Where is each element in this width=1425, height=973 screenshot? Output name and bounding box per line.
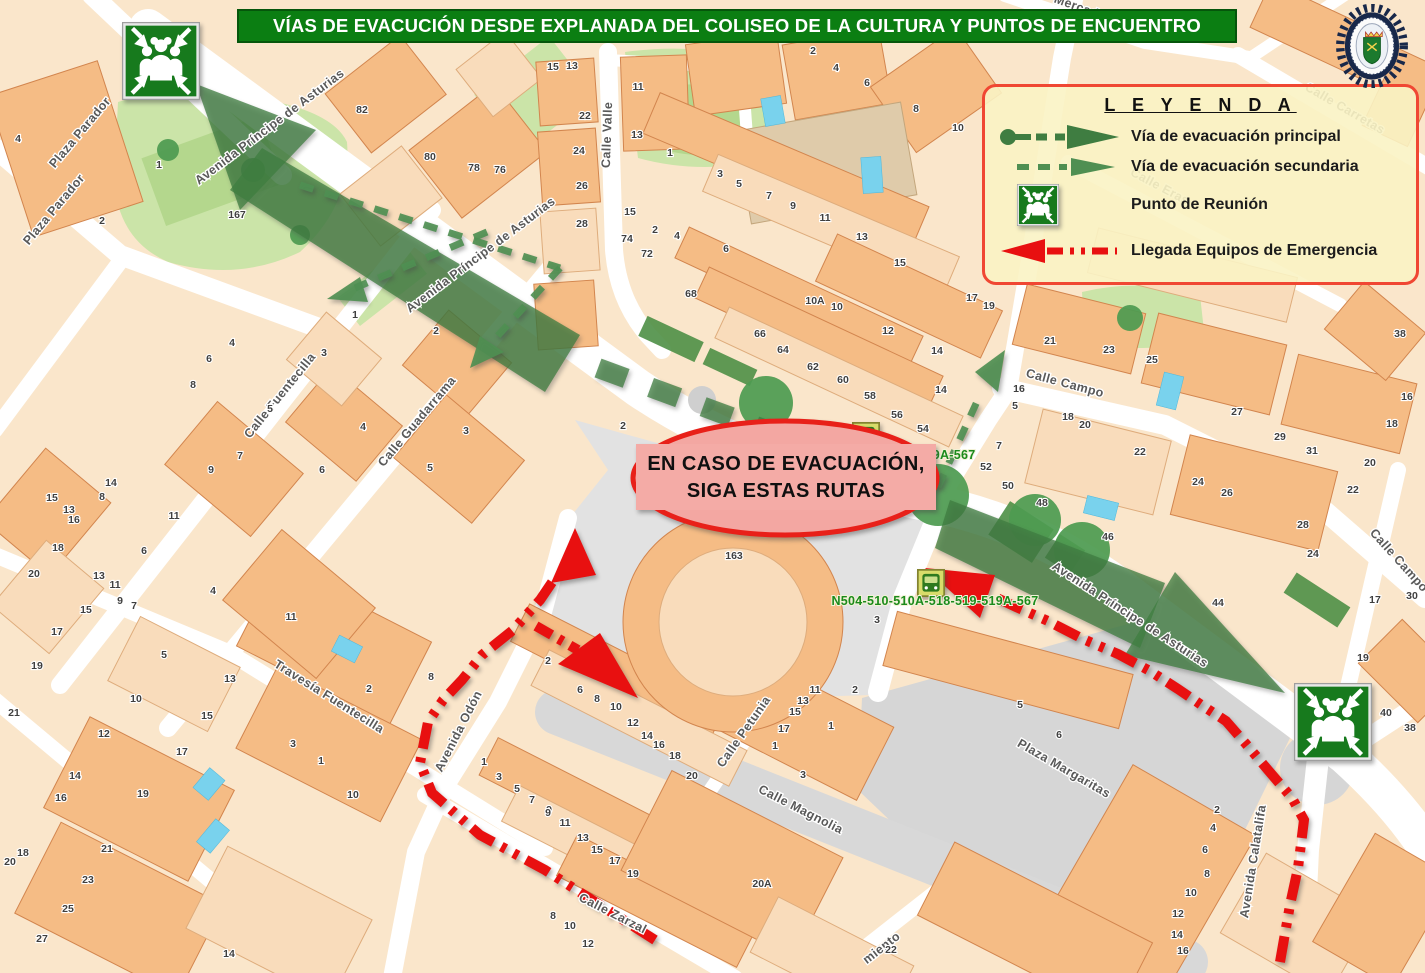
house-number: 22 bbox=[579, 110, 591, 122]
house-number: 38 bbox=[1394, 328, 1406, 340]
house-number: 13 bbox=[566, 60, 578, 72]
house-number: 14 bbox=[69, 770, 81, 782]
house-number: 50 bbox=[1002, 480, 1014, 492]
house-number: 48 bbox=[1036, 497, 1048, 509]
house-number: 2 bbox=[852, 684, 858, 696]
house-number: 46 bbox=[1102, 531, 1114, 543]
house-number: 29 bbox=[1274, 431, 1286, 443]
meeting-point-icon bbox=[122, 22, 200, 100]
house-number: 6 bbox=[141, 545, 147, 557]
house-number: 17 bbox=[51, 626, 63, 638]
house-number: 62 bbox=[807, 361, 819, 373]
legend-title: L E Y E N D A bbox=[999, 95, 1402, 116]
house-number: 11 bbox=[632, 81, 643, 93]
house-number: 9 bbox=[790, 200, 796, 212]
house-number: 4 bbox=[229, 337, 235, 349]
house-number: 6 bbox=[319, 464, 325, 476]
house-number: 11 bbox=[809, 684, 820, 696]
callout-line1: EN CASO DE EVACUACIÓN, bbox=[647, 451, 924, 475]
house-number: 1 bbox=[318, 755, 324, 767]
house-number: 6 bbox=[1056, 729, 1062, 741]
house-number: 7 bbox=[237, 450, 243, 462]
house-number: 8 bbox=[1204, 868, 1210, 880]
meeting-point-icon bbox=[999, 183, 1121, 227]
house-number: 76 bbox=[494, 164, 506, 176]
house-number: 8 bbox=[428, 671, 434, 683]
house-number: 20 bbox=[686, 770, 698, 782]
house-number: 16 bbox=[1177, 945, 1189, 957]
house-number: 21 bbox=[101, 843, 113, 855]
house-number: 18 bbox=[1062, 411, 1074, 423]
house-number: 13 bbox=[856, 231, 868, 243]
house-number: 4 bbox=[210, 585, 216, 597]
house-number: 17 bbox=[609, 855, 621, 867]
house-number: 23 bbox=[1103, 344, 1115, 356]
house-number: 3 bbox=[463, 425, 469, 437]
house-number: 17 bbox=[966, 292, 978, 304]
house-number: 38 bbox=[1404, 722, 1416, 734]
house-number: 60 bbox=[837, 374, 849, 386]
house-number: 17 bbox=[1369, 594, 1381, 606]
house-number: 66 bbox=[754, 328, 766, 340]
house-number: 21 bbox=[8, 707, 20, 719]
house-number: 20 bbox=[4, 856, 16, 868]
house-number: 12 bbox=[1172, 908, 1184, 920]
legend-item-llegada: Llegada Equipos de Emergencia bbox=[999, 228, 1402, 274]
evacuation-map-page: Plaza ParadorPlaza ParadorAvenida Prínci… bbox=[0, 0, 1425, 973]
house-number: 15 bbox=[624, 206, 636, 218]
house-number: 3 bbox=[800, 769, 806, 781]
house-number: 5 bbox=[514, 783, 520, 795]
house-number: 28 bbox=[1297, 519, 1309, 531]
house-number: 11 bbox=[168, 510, 179, 522]
house-number: 15 bbox=[789, 706, 801, 718]
principal-route-arrow-icon bbox=[999, 124, 1121, 150]
house-number: 10 bbox=[831, 301, 843, 313]
house-number: 6 bbox=[577, 684, 583, 696]
house-number: 2 bbox=[545, 655, 551, 667]
secondary-route-arrow-icon bbox=[999, 154, 1121, 180]
house-number: 18 bbox=[1386, 418, 1398, 430]
house-number: 20 bbox=[1079, 419, 1091, 431]
house-number: 7 bbox=[996, 440, 1002, 452]
house-number: 3 bbox=[290, 738, 296, 750]
house-number: 5 bbox=[161, 649, 167, 661]
house-number: 20A bbox=[752, 878, 772, 890]
house-number: 20 bbox=[28, 568, 40, 580]
house-number: 163 bbox=[725, 550, 743, 562]
house-number: 15 bbox=[894, 257, 906, 269]
house-number: 30 bbox=[1406, 590, 1418, 602]
house-number: 14 bbox=[931, 345, 943, 357]
house-number: 44 bbox=[1212, 597, 1224, 609]
house-number: 24 bbox=[1192, 476, 1204, 488]
house-number: 4 bbox=[833, 62, 839, 74]
house-number: 5 bbox=[736, 178, 742, 190]
house-number: 1 bbox=[156, 159, 162, 171]
house-number: 9 bbox=[117, 595, 123, 607]
page-title: VÍAS DE EVACUCIÓN DESDE EXPLANADA DEL CO… bbox=[273, 15, 1201, 37]
house-number: 21 bbox=[1044, 335, 1056, 347]
house-number: 10 bbox=[610, 701, 622, 713]
house-number: 19 bbox=[1357, 652, 1369, 664]
house-number: 31 bbox=[1306, 445, 1318, 457]
house-number: 22 bbox=[885, 944, 897, 956]
house-number: 12 bbox=[882, 325, 894, 337]
house-number: 2 bbox=[99, 215, 105, 227]
house-number: 14 bbox=[105, 477, 117, 489]
house-number: 4 bbox=[360, 421, 366, 433]
house-number: 10A bbox=[805, 295, 825, 307]
house-number: 7 bbox=[766, 190, 772, 202]
house-number: 27 bbox=[1231, 406, 1243, 418]
house-number: 68 bbox=[685, 288, 697, 300]
house-number: 13 bbox=[631, 129, 643, 141]
house-number: 1 bbox=[772, 740, 778, 752]
house-number: 8 bbox=[190, 379, 196, 391]
house-number: 18 bbox=[17, 847, 29, 859]
evacuation-callout: EN CASO DE EVACUACIÓN, SIGA ESTAS RUTAS bbox=[633, 421, 937, 535]
house-number: 1 bbox=[828, 720, 834, 732]
house-number: 8 bbox=[913, 103, 919, 115]
house-number: 11 bbox=[559, 817, 570, 829]
house-number: 8 bbox=[99, 491, 105, 503]
house-number: 16 bbox=[1401, 391, 1413, 403]
house-number: 25 bbox=[1146, 354, 1158, 366]
house-number: 8 bbox=[550, 910, 556, 922]
house-number: 18 bbox=[669, 750, 681, 762]
house-number: 9 bbox=[208, 464, 214, 476]
legend-item-label: Vía de evacuación principal bbox=[1131, 128, 1341, 146]
house-number: 78 bbox=[468, 162, 480, 174]
title-banner: VÍAS DE EVACUCIÓN DESDE EXPLANADA DEL CO… bbox=[237, 9, 1237, 43]
house-number: 15 bbox=[80, 604, 92, 616]
house-number: 17 bbox=[176, 746, 188, 758]
house-number: 13 bbox=[93, 570, 105, 582]
house-number: 22 bbox=[1134, 446, 1146, 458]
emergency-arrival-arrow-icon bbox=[999, 236, 1121, 266]
house-number: 10 bbox=[952, 122, 964, 134]
house-number: 72 bbox=[641, 248, 653, 260]
house-number: 28 bbox=[576, 218, 588, 230]
house-number: 19 bbox=[137, 788, 149, 800]
house-number: 24 bbox=[573, 145, 585, 157]
legend-item-principal: Vía de evacuación principal bbox=[999, 122, 1402, 152]
house-number: 1 bbox=[667, 147, 673, 159]
house-number: 25 bbox=[62, 903, 74, 915]
house-number: 14 bbox=[641, 730, 653, 742]
house-number: 27 bbox=[36, 933, 48, 945]
house-number: 6 bbox=[1202, 844, 1208, 856]
house-number: 3 bbox=[321, 347, 327, 359]
house-number: 74 bbox=[621, 233, 633, 245]
house-number: 2 bbox=[366, 683, 372, 695]
house-number: 2 bbox=[620, 420, 626, 432]
house-number: 16 bbox=[68, 514, 80, 526]
house-number: 12 bbox=[98, 728, 110, 740]
house-number: 5 bbox=[427, 462, 433, 474]
house-number: 54 bbox=[917, 423, 929, 435]
house-number: 5 bbox=[1012, 400, 1018, 412]
legend-item-label: Vía de evacuación secundaria bbox=[1131, 158, 1359, 176]
house-number: 5 bbox=[1017, 699, 1023, 711]
house-number: 8 bbox=[594, 693, 600, 705]
house-number: 3 bbox=[874, 614, 880, 626]
house-number: 5 bbox=[267, 403, 273, 415]
house-number: 15 bbox=[201, 710, 213, 722]
house-number: 11 bbox=[285, 611, 296, 623]
house-number: 40 bbox=[1380, 707, 1392, 719]
house-number: 52 bbox=[980, 461, 992, 473]
house-number: 6 bbox=[723, 243, 729, 255]
policia-local-badge bbox=[1334, 4, 1410, 88]
house-number: 16 bbox=[55, 792, 67, 804]
house-number: 167 bbox=[228, 209, 246, 221]
house-number: 12 bbox=[627, 717, 639, 729]
house-number: 4 bbox=[15, 133, 21, 145]
house-number: 6 bbox=[206, 353, 212, 365]
legend-item-secundaria: Vía de evacuación secundaria bbox=[999, 152, 1402, 182]
house-number: 12 bbox=[582, 938, 594, 950]
house-number: 56 bbox=[891, 409, 903, 421]
house-number: 9 bbox=[545, 807, 551, 819]
house-number: 16 bbox=[653, 739, 665, 751]
house-number: 3 bbox=[496, 771, 502, 783]
house-number: 10 bbox=[347, 789, 359, 801]
house-number: 19 bbox=[31, 660, 43, 672]
legend-item-label: Punto de Reunión bbox=[1131, 196, 1268, 214]
house-number: 20 bbox=[1364, 457, 1376, 469]
house-number: 4 bbox=[1210, 822, 1216, 834]
house-number: 2 bbox=[1214, 804, 1220, 816]
house-number: 10 bbox=[130, 693, 142, 705]
house-number: 13 bbox=[224, 673, 236, 685]
legend-panel: L E Y E N D A Vía de evacuación principa… bbox=[982, 84, 1419, 285]
house-number: 15 bbox=[547, 61, 559, 73]
house-number: 13 bbox=[577, 832, 589, 844]
house-number: 19 bbox=[983, 300, 995, 312]
house-number: 11 bbox=[819, 212, 830, 224]
house-number: 19 bbox=[627, 868, 639, 880]
house-number: 6 bbox=[864, 77, 870, 89]
house-number: 11 bbox=[109, 579, 120, 591]
house-number: 80 bbox=[424, 151, 436, 163]
house-number: 2 bbox=[810, 45, 816, 57]
house-number: 7 bbox=[131, 600, 137, 612]
house-number: 3 bbox=[717, 168, 723, 180]
house-number: 10 bbox=[564, 920, 576, 932]
house-number: 14 bbox=[1171, 929, 1183, 941]
house-number: 14 bbox=[935, 384, 947, 396]
bus-stop-label: N504-510-510A-518-519-519A-567 bbox=[831, 594, 1038, 608]
house-number: 4 bbox=[674, 230, 680, 242]
house-number: 23 bbox=[82, 874, 94, 886]
legend-item-reunion: Punto de Reunión bbox=[999, 182, 1402, 228]
bus-stop-icon bbox=[918, 570, 944, 596]
house-number: 16 bbox=[1013, 383, 1025, 395]
house-number: 26 bbox=[1221, 487, 1233, 499]
house-number: 82 bbox=[356, 104, 368, 116]
house-number: 26 bbox=[576, 180, 588, 192]
house-number: 58 bbox=[864, 390, 876, 402]
house-number: 1 bbox=[481, 756, 487, 768]
house-number: 1 bbox=[352, 309, 358, 321]
house-number: 7 bbox=[529, 794, 535, 806]
legend-item-label: Llegada Equipos de Emergencia bbox=[1131, 242, 1377, 260]
house-number: 64 bbox=[777, 344, 789, 356]
house-number: 22 bbox=[1347, 484, 1359, 496]
house-number: 10 bbox=[1185, 887, 1197, 899]
house-number: 2 bbox=[433, 325, 439, 337]
callout-line2: SIGA ESTAS RUTAS bbox=[687, 480, 885, 502]
house-number: 18 bbox=[52, 542, 64, 554]
house-number: 14 bbox=[223, 948, 235, 960]
house-number: 2 bbox=[652, 224, 658, 236]
house-number: 15 bbox=[591, 844, 603, 856]
house-number: 17 bbox=[778, 723, 790, 735]
house-number: 24 bbox=[1307, 548, 1319, 560]
house-number: 15 bbox=[46, 492, 58, 504]
street-label: Calle Valle bbox=[599, 102, 615, 169]
meeting-point-icon bbox=[1294, 683, 1372, 761]
